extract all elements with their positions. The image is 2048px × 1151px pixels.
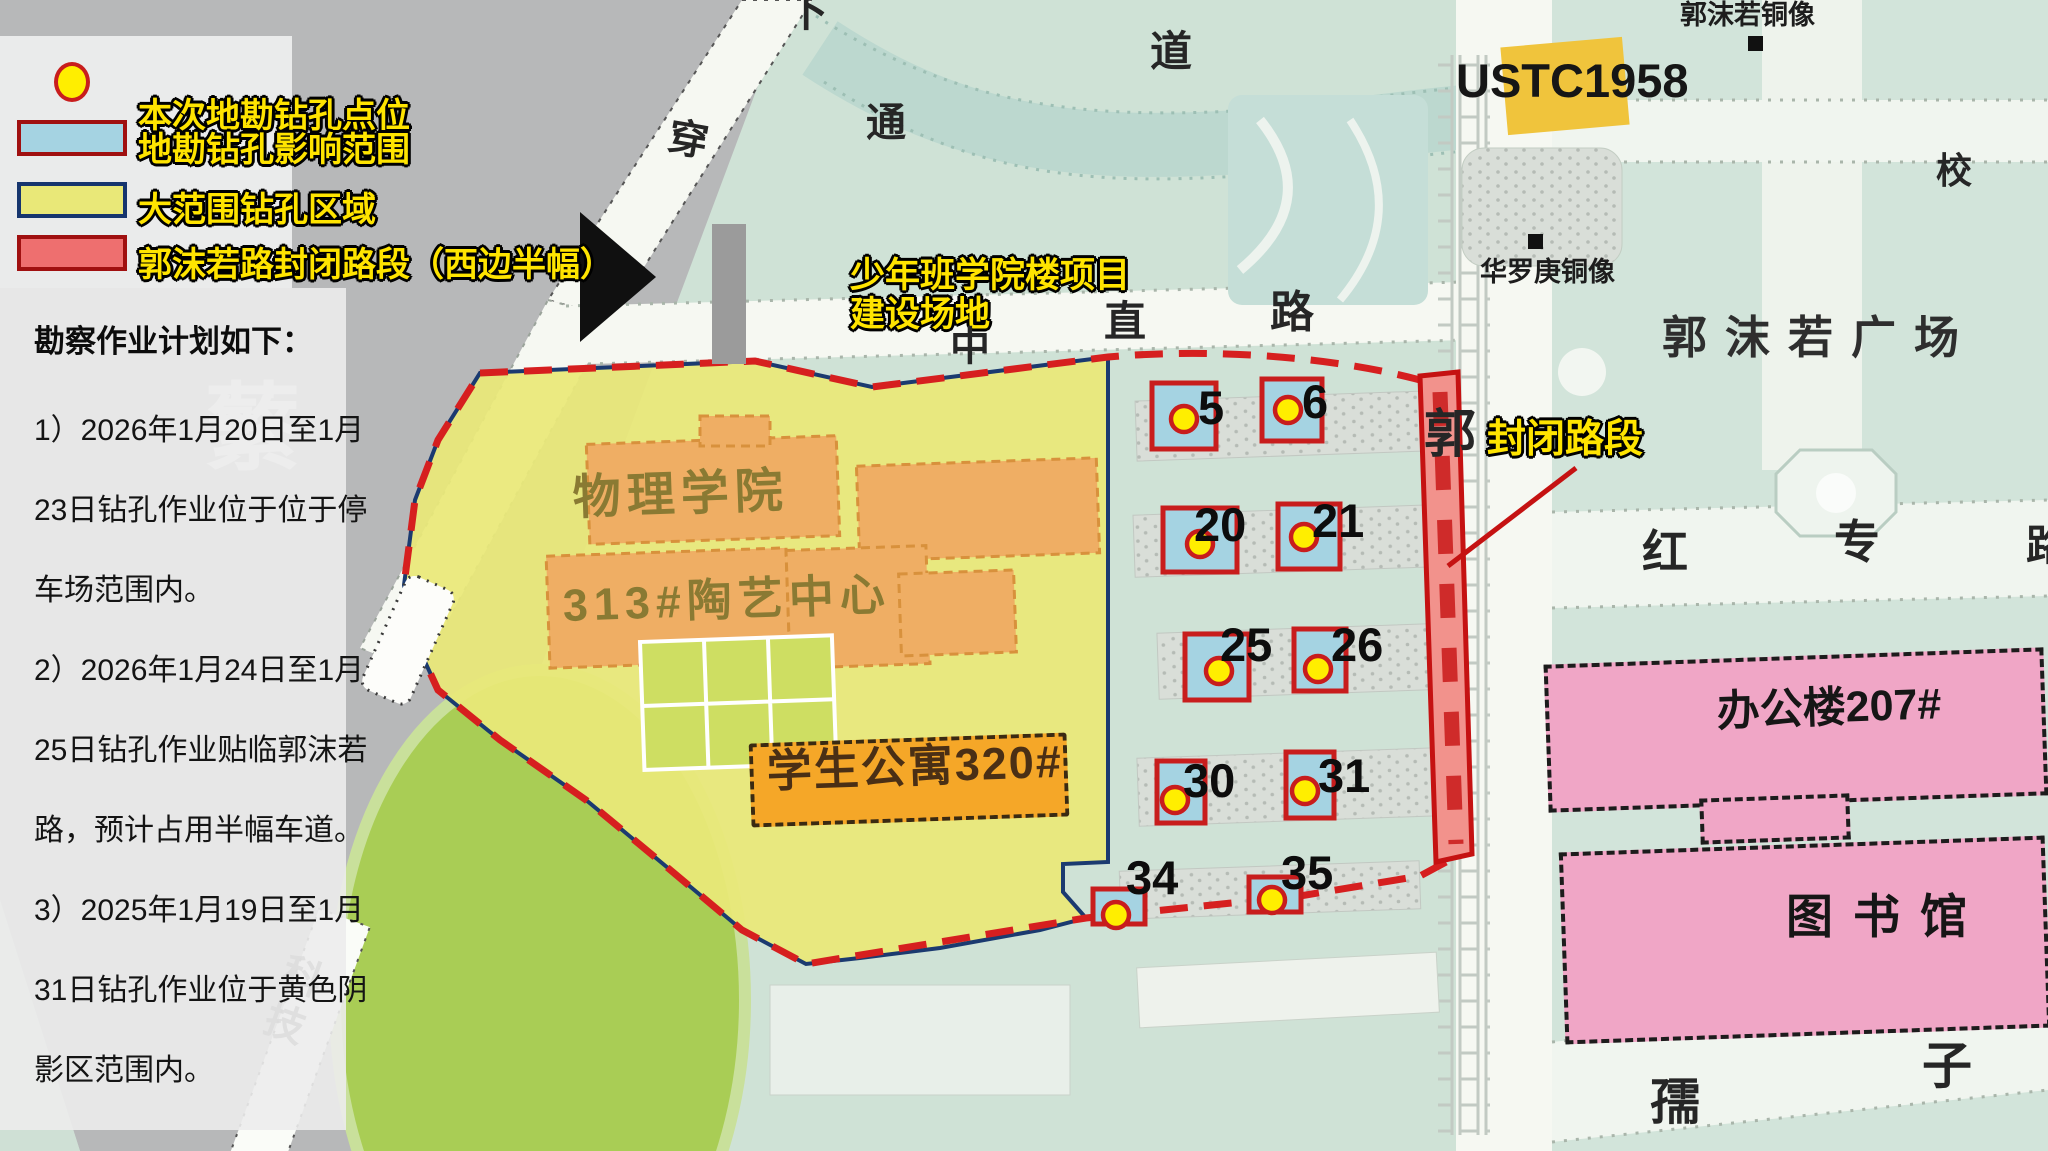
- road-char-tong: 通: [866, 102, 906, 144]
- road-char-zhi: 直: [1104, 300, 1146, 344]
- plan-line: 31日钻孔作业位于黄色阴: [34, 951, 336, 1031]
- road-char-ru: 孺: [1650, 1076, 1700, 1129]
- plan-line: 25日钻孔作业贴临郭沫若: [34, 711, 336, 791]
- campus-survey-map: 562021252630313435 少年班学院楼项目建设场地封闭路段物理学院3…: [0, 0, 2048, 1151]
- plan-lines: 1）2026年1月20日至1月23日钻孔作业位于位于停车场范围内。2）2026年…: [34, 391, 336, 1111]
- plan-line: 23日钻孔作业位于位于停: [34, 471, 336, 551]
- road-char-xia: 下: [786, 0, 828, 34]
- label-closed-road: 封闭路段: [1487, 420, 1643, 461]
- road-char-lu: 路: [1270, 290, 1314, 336]
- road-char-hong: 红: [1642, 528, 1688, 576]
- legend-drill-point-icon: [54, 62, 90, 102]
- label-office-207: 办公楼207#: [1716, 682, 1942, 735]
- road-char-dao: 道: [1150, 30, 1192, 74]
- road-char-chuan: 穿: [665, 116, 712, 164]
- legend-area-swatch: [17, 182, 127, 218]
- plan-line: 3）2025年1月19日至1月: [34, 871, 336, 951]
- label-ceramic-center-313: 313#陶艺中心: [562, 571, 892, 630]
- legend-influence-swatch: [17, 120, 127, 156]
- label-project-site-line1: 少年班学院楼项目: [850, 258, 1130, 295]
- legend-closed-road-swatch: [17, 235, 127, 271]
- label-hualuogeng-statue: 华罗庚铜像: [1480, 258, 1615, 286]
- label-ustc1958: USTC1958: [1456, 56, 1689, 105]
- road-char-xiao: 校: [1936, 152, 1972, 190]
- plan-line: 影区范围内。: [34, 1031, 336, 1111]
- road-char-zhuan: 专: [1834, 518, 1880, 566]
- label-library: 图书馆: [1786, 892, 1987, 941]
- road-char-guo: 郭: [1424, 408, 1476, 463]
- label-physics-school: 物理学院: [572, 466, 790, 524]
- legend-item-label: 地勘钻孔影响范围: [138, 122, 410, 171]
- label-guomoruo-statue: 郭沫若铜像: [1680, 1, 1815, 29]
- label-guomoruo-square: 郭沫若广场: [1662, 314, 1977, 361]
- survey-plan-panel: 勘察作业计划如下： 1）2026年1月20日至1月23日钻孔作业位于位于停车场范…: [0, 288, 346, 1130]
- plan-line: 车场范围内。: [34, 551, 336, 631]
- plan-title: 勘察作业计划如下：: [34, 316, 336, 361]
- road-char-zhong: 中: [950, 326, 990, 368]
- legend-item-label: 郭沫若路封闭路段（西边半幅）: [138, 237, 614, 286]
- plan-line: 1）2026年1月20日至1月: [34, 391, 336, 471]
- plan-line: 路，预计占用半幅车道。: [34, 791, 336, 871]
- label-dorm-320: 学生公寓320#: [766, 738, 1064, 796]
- legend-panel: 本次地勘钻孔点位 地勘钻孔影响范围 大范围钻孔区域 郭沫若路封闭路段（西边半幅）: [0, 36, 292, 288]
- legend-item-label: 大范围钻孔区域: [138, 182, 376, 231]
- road-char-lu-edge: 路: [2026, 524, 2048, 568]
- road-char-zi: 子: [1922, 1040, 1972, 1093]
- plan-line: 2）2026年1月24日至1月: [34, 631, 336, 711]
